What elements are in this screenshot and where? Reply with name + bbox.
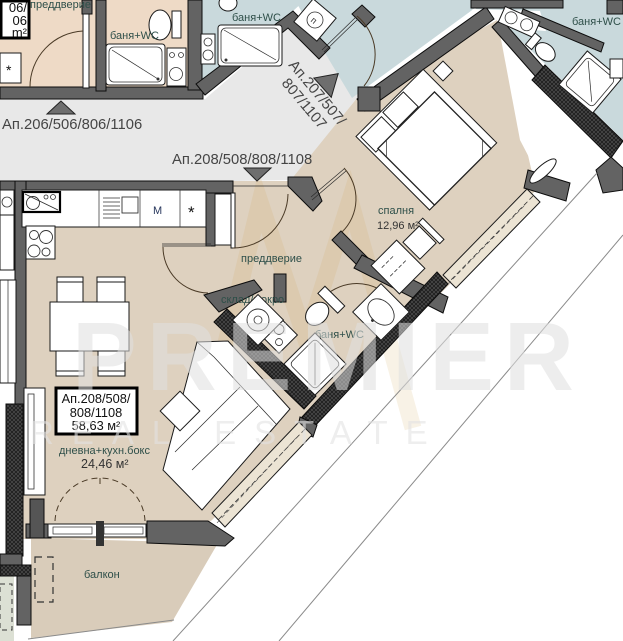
svg-text:баня+WC: баня+WC <box>232 12 281 24</box>
svg-text:m²: m² <box>12 25 28 40</box>
svg-text:преддверие: преддверие <box>241 253 302 265</box>
svg-text:баня+WC: баня+WC <box>110 30 159 42</box>
svg-text:*: * <box>188 203 195 222</box>
svg-text:Ап.206/506/806/1106: Ап.206/506/806/1106 <box>2 117 142 133</box>
svg-text:REAL ESTATE: REAL ESTATE <box>30 414 446 451</box>
svg-text:баня+WC: баня+WC <box>572 16 621 28</box>
svg-text:преддверие: преддверие <box>30 0 91 11</box>
svg-text:PREMIER: PREMIER <box>72 302 584 411</box>
svg-text:спалня: спалня <box>378 205 414 217</box>
svg-text:Ап.208/508/808/1108: Ап.208/508/808/1108 <box>172 152 312 168</box>
svg-text:12,96 м²: 12,96 м² <box>377 220 419 232</box>
svg-text:балкон: балкон <box>84 569 120 581</box>
svg-text:*: * <box>6 62 12 78</box>
svg-text:24,46 м²: 24,46 м² <box>81 457 129 471</box>
svg-text:M: M <box>153 205 162 217</box>
